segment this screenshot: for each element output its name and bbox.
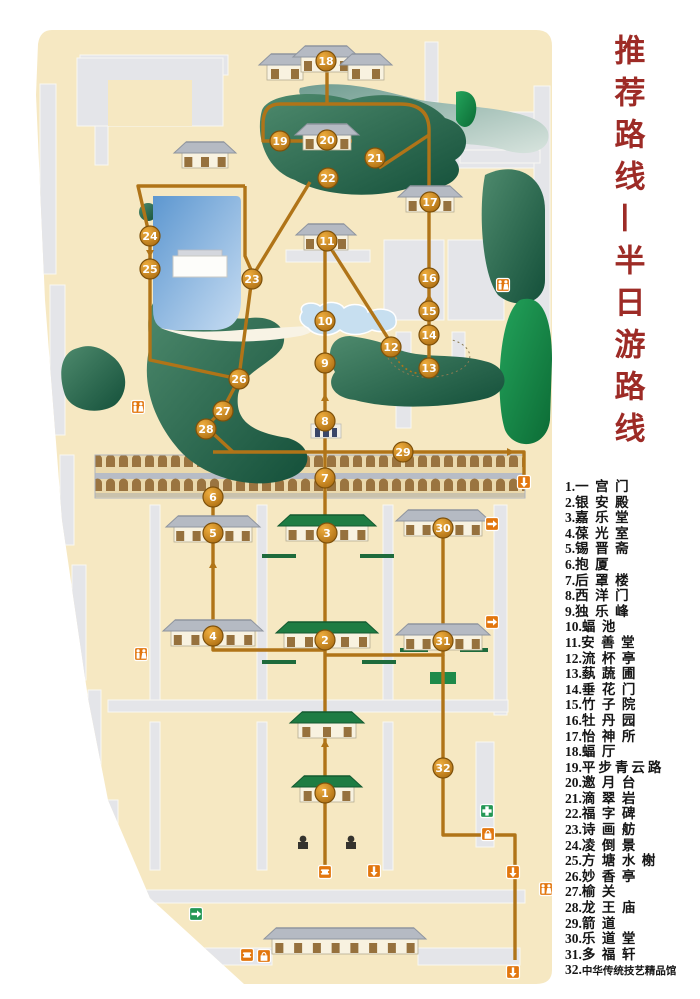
- legend-item: 31.多福轩: [565, 947, 699, 963]
- legend-item-name: 后罩楼: [575, 573, 635, 588]
- svg-text:28: 28: [198, 423, 213, 436]
- legend-item-number: 27.: [565, 884, 582, 900]
- legend-item: 15.竹子院: [565, 697, 699, 713]
- toilet-icon: [540, 883, 553, 896]
- legend-item-name: 滴翠岩: [582, 791, 642, 806]
- ticket-icon: [319, 866, 332, 879]
- legend-item-number: 22.: [565, 806, 582, 822]
- svg-text:14: 14: [421, 329, 437, 342]
- legend-item-number: 19.: [565, 760, 582, 776]
- legend-item-number: 28.: [565, 900, 582, 916]
- legend-item-name: 诗画舫: [582, 822, 642, 837]
- route-marker-12: 12: [381, 337, 401, 357]
- aid-icon: [481, 805, 494, 818]
- exit-icon: [486, 518, 499, 531]
- legend-item: 23.诗画舫: [565, 822, 699, 838]
- legend-item-number: 5.: [565, 541, 575, 557]
- legend-item-name: 方塘水榭: [582, 853, 662, 868]
- legend-item-name: 独乐峰: [575, 604, 635, 619]
- route-marker-27: 27: [213, 401, 233, 421]
- legend-item: 17.怡神所: [565, 729, 699, 745]
- building-gray-roof: [264, 928, 426, 954]
- svg-text:20: 20: [319, 134, 335, 147]
- legend-item-name: 一宫门: [575, 479, 635, 494]
- svg-text:18: 18: [318, 55, 333, 68]
- ticket-icon: [241, 949, 254, 962]
- route-marker-17: 17: [420, 192, 440, 212]
- legend-item-number: 2.: [565, 495, 575, 511]
- boat-hall: [173, 250, 227, 277]
- legend-item-number: 23.: [565, 822, 582, 838]
- legend-item: 1.一宫门: [565, 479, 699, 495]
- legend-item-name: 榆关: [582, 884, 622, 899]
- route-marker-20: 20: [317, 130, 337, 150]
- legend-item-number: 3.: [565, 510, 575, 526]
- legend-item-name: 龙王庙: [582, 900, 642, 915]
- route-marker-25: 25: [140, 259, 160, 279]
- legend-item-name: 箭道: [582, 916, 622, 931]
- svg-text:15: 15: [421, 305, 436, 318]
- svg-text:29: 29: [395, 446, 410, 459]
- legend-item: 22.福字碑: [565, 806, 699, 822]
- legend-item: 25.方塘水榭: [565, 853, 699, 869]
- legend-item-number: 1.: [565, 479, 575, 495]
- svg-text:7: 7: [321, 472, 329, 485]
- svg-text:9: 9: [321, 357, 329, 370]
- legend-item: 27.榆关: [565, 884, 699, 900]
- legend-item: 28.龙王庙: [565, 900, 699, 916]
- svg-text:13: 13: [421, 362, 436, 375]
- route-marker-9: 9: [315, 353, 335, 373]
- legend-item-number: 8.: [565, 588, 575, 604]
- legend-item-name: 福字碑: [582, 806, 642, 821]
- legend-item: 8.西洋门: [565, 588, 699, 604]
- route-marker-16: 16: [419, 268, 439, 288]
- legend-item-name: 平步青云路: [582, 760, 665, 775]
- legend-item-number: 14.: [565, 682, 582, 698]
- legend-item: 10.蝠池: [565, 619, 699, 635]
- svg-text:6: 6: [209, 491, 217, 504]
- route-marker-11: 11: [317, 231, 337, 251]
- shop-icon: [482, 828, 495, 841]
- legend-item-name: 蝠池: [582, 619, 622, 634]
- svg-text:12: 12: [383, 341, 398, 354]
- legend-item-name: 蓺蔬圃: [582, 666, 642, 681]
- toilet-icon: [497, 279, 510, 292]
- route-marker-21: 21: [365, 148, 385, 168]
- page-title: 推荐路线—半日游路线: [610, 34, 643, 454]
- route-marker-24: 24: [140, 226, 160, 246]
- route-marker-7: 7: [315, 468, 335, 488]
- route-marker-1: 1: [315, 783, 335, 803]
- svg-text:11: 11: [319, 235, 334, 248]
- garden-map: 1234567891011121314151617181920212223242…: [0, 0, 560, 999]
- svg-text:1: 1: [321, 787, 329, 800]
- route-marker-31: 31: [433, 631, 453, 651]
- svg-text:23: 23: [244, 273, 259, 286]
- legend-item-name: 流杯亭: [582, 651, 642, 666]
- legend-item-number: 11.: [565, 635, 581, 651]
- legend-item: 4.葆光室: [565, 526, 699, 542]
- route-marker-22: 22: [318, 168, 338, 188]
- legend-item-name: 多福轩: [582, 947, 642, 962]
- route-marker-26: 26: [229, 369, 249, 389]
- exit-icon: [518, 476, 531, 489]
- building-gray-roof: [340, 54, 392, 80]
- exit-icon: [507, 866, 520, 879]
- svg-text:16: 16: [421, 272, 437, 285]
- exit-icon: [368, 865, 381, 878]
- toilet-icon: [135, 648, 148, 661]
- legend-item: 9.独乐峰: [565, 604, 699, 620]
- route-marker-13: 13: [419, 358, 439, 378]
- exitg-icon: [190, 908, 203, 921]
- route-marker-14: 14: [419, 325, 439, 345]
- legend-item: 26.妙香亭: [565, 869, 699, 885]
- route-marker-3: 3: [317, 523, 337, 543]
- legend-item-name: 银安殿: [575, 495, 635, 510]
- legend-item: 30.乐道堂: [565, 931, 699, 947]
- svg-text:31: 31: [435, 635, 450, 648]
- route-marker-10: 10: [315, 311, 335, 331]
- legend-item: 24.凌倒景: [565, 838, 699, 854]
- legend-item-name: 蝠厅: [582, 744, 622, 759]
- shop-icon: [258, 950, 271, 963]
- legend-item-name: 竹子院: [582, 697, 642, 712]
- legend-item-number: 18.: [565, 744, 582, 760]
- legend-item-number: 12.: [565, 651, 582, 667]
- legend-item-number: 29.: [565, 916, 582, 932]
- route-marker-4: 4: [203, 626, 223, 646]
- legend-item: 20.邀月台: [565, 775, 699, 791]
- legend-item-number: 4.: [565, 526, 575, 542]
- legend-item-name: 安善堂: [581, 635, 641, 650]
- svg-text:32: 32: [435, 762, 450, 775]
- route-marker-8: 8: [315, 411, 335, 431]
- svg-text:10: 10: [317, 315, 333, 328]
- legend-item: 21.滴翠岩: [565, 791, 699, 807]
- exit-icon: [486, 616, 499, 629]
- legend-item: 7.后罩楼: [565, 573, 699, 589]
- svg-text:8: 8: [321, 415, 329, 428]
- legend-item-number: 20.: [565, 775, 582, 791]
- legend-item-name: 抱厦: [575, 557, 615, 572]
- legend-item: 18.蝠厅: [565, 744, 699, 760]
- legend-item-number: 10.: [565, 619, 582, 635]
- legend-item-number: 26.: [565, 869, 582, 885]
- legend-item-name: 葆光室: [575, 526, 635, 541]
- legend-item-number: 31.: [565, 947, 582, 963]
- legend-item-number: 15.: [565, 697, 582, 713]
- route-marker-32: 32: [433, 758, 453, 778]
- route-marker-6: 6: [203, 487, 223, 507]
- legend-item-name: 嘉乐堂: [575, 510, 635, 525]
- route-marker-23: 23: [242, 269, 262, 289]
- svg-text:24: 24: [142, 230, 158, 243]
- svg-text:4: 4: [209, 630, 217, 643]
- legend-item-number: 30.: [565, 931, 582, 947]
- svg-text:19: 19: [272, 135, 287, 148]
- legend-item-number: 9.: [565, 604, 575, 620]
- legend-item: 13.蓺蔬圃: [565, 666, 699, 682]
- exit-icon: [507, 966, 520, 979]
- legend-item-name: 西洋门: [575, 588, 635, 603]
- building-gray-roof: [174, 142, 236, 168]
- legend-item: 16.牡丹园: [565, 713, 699, 729]
- route-marker-2: 2: [315, 630, 335, 650]
- legend-item-name: 妙香亭: [582, 869, 642, 884]
- legend-item: 29.箭道: [565, 916, 699, 932]
- toilet-icon: [132, 401, 145, 414]
- legend-item: 12.流杯亭: [565, 651, 699, 667]
- legend-item: 19.平步青云路: [565, 760, 699, 776]
- svg-text:25: 25: [142, 263, 157, 276]
- map-page: 1234567891011121314151617181920212223242…: [0, 0, 700, 999]
- legend-item-name: 邀月台: [582, 775, 642, 790]
- legend-item-number: 17.: [565, 729, 582, 745]
- legend-item: 6.抱厦: [565, 557, 699, 573]
- arcade-building: [95, 455, 525, 498]
- route-marker-5: 5: [203, 523, 223, 543]
- svg-text:22: 22: [320, 172, 335, 185]
- legend-item-number: 16.: [565, 713, 582, 729]
- legend-list: 1.一宫门2.银安殿3.嘉乐堂4.葆光室5.锡晋斋6.抱厦7.后罩楼8.西洋门9…: [565, 479, 699, 978]
- legend-item-name: 中华传统技艺精品馆: [582, 966, 677, 977]
- legend-item-number: 32.: [565, 962, 582, 978]
- route-marker-30: 30: [433, 518, 453, 538]
- svg-text:17: 17: [422, 196, 437, 209]
- legend-item-name: 怡神所: [582, 729, 642, 744]
- legend-item-number: 6.: [565, 557, 575, 573]
- legend-item-number: 21.: [565, 791, 582, 807]
- svg-text:2: 2: [321, 634, 329, 647]
- route-marker-18: 18: [316, 51, 336, 71]
- svg-text:26: 26: [231, 373, 247, 386]
- svg-text:5: 5: [209, 527, 217, 540]
- building-green-roof: [290, 712, 364, 738]
- legend-item-name: 牡丹园: [582, 713, 642, 728]
- route-marker-15: 15: [419, 301, 439, 321]
- legend-item: 11.安善堂: [565, 635, 699, 651]
- legend-item-number: 7.: [565, 573, 575, 589]
- route-marker-28: 28: [196, 419, 216, 439]
- legend-item-number: 24.: [565, 838, 582, 854]
- legend-item: 2.银安殿: [565, 495, 699, 511]
- legend-item: 3.嘉乐堂: [565, 510, 699, 526]
- legend-item-number: 25.: [565, 853, 582, 869]
- legend-item-name: 凌倒景: [582, 838, 642, 853]
- legend-item: 14.垂花门: [565, 682, 699, 698]
- svg-text:21: 21: [367, 152, 382, 165]
- legend-item-name: 乐道堂: [582, 931, 642, 946]
- legend-item-number: 13.: [565, 666, 582, 682]
- legend-item-name: 锡晋斋: [575, 541, 635, 556]
- route-marker-29: 29: [393, 442, 413, 462]
- legend-item-name: 垂花门: [582, 682, 642, 697]
- legend-item: 32.中华传统技艺精品馆: [565, 962, 699, 978]
- svg-text:27: 27: [215, 405, 230, 418]
- svg-text:30: 30: [435, 522, 451, 535]
- legend-item: 5.锡晋斋: [565, 541, 699, 557]
- route-marker-19: 19: [270, 131, 290, 151]
- svg-text:3: 3: [323, 527, 331, 540]
